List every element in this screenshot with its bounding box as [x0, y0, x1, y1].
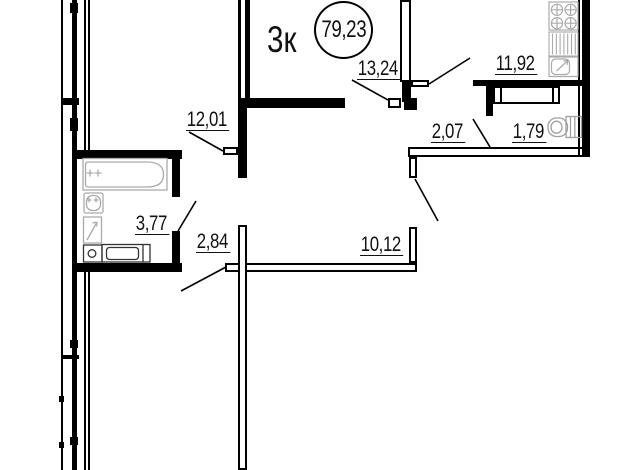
room-area-label-bedroom: 12,01 — [186, 109, 229, 131]
bathtub — [83, 159, 167, 191]
door-swing-entry — [415, 179, 438, 221]
leader-line-living-door — [352, 80, 388, 100]
fixtures-layer — [0, 0, 644, 470]
dish-rack-icon — [549, 32, 578, 56]
room-area-label-bathroom: 3,77 — [135, 213, 169, 235]
water-heater-icon — [84, 217, 102, 243]
washing-machine-icon — [102, 245, 150, 263]
door-swing-corridor — [181, 267, 226, 291]
leader-line-bedroom-door — [189, 132, 223, 151]
room-area-label-corridor: 2,84 — [196, 231, 230, 253]
room-area-label-living: 13,24 — [357, 58, 400, 80]
door-swing-wc — [473, 119, 490, 147]
room-area-label-hallway: 2,07 — [431, 121, 465, 143]
room-area-label-room-bottom: 10,12 — [360, 234, 403, 256]
leader-line-bathroom-door — [178, 201, 196, 231]
wash-basin-icon — [84, 193, 103, 213]
apartment-type-label: 3к — [267, 21, 296, 58]
floor-plan: 3к 79,23 12,01 13,24 11,92 2,07 1,79 3,7… — [0, 0, 644, 470]
room-area-label-wc: 1,79 — [512, 121, 546, 143]
total-area-badge: 79,23 — [314, 1, 373, 59]
room-area-label-kitchen: 11,92 — [495, 53, 537, 75]
door-swing-kitchen — [429, 58, 470, 84]
floor-drain-icon — [84, 245, 103, 262]
toilet-icon — [548, 117, 582, 138]
total-area-value: 79,23 — [321, 18, 366, 42]
stove-icon — [549, 2, 578, 30]
kitchen-sink-icon — [549, 57, 578, 77]
